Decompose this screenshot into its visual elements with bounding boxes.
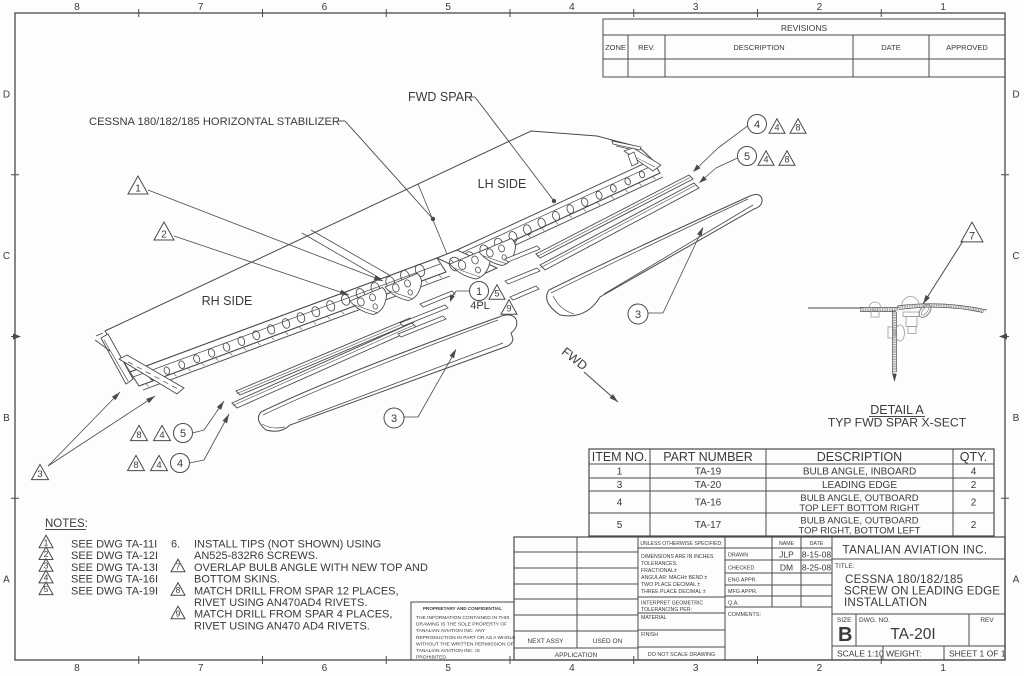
svg-text:4: 4	[569, 2, 575, 13]
svg-text:3: 3	[391, 413, 397, 425]
svg-text:ANGULAR: MACH± BEND ±: ANGULAR: MACH± BEND ±	[641, 575, 707, 581]
svg-text:4: 4	[569, 663, 575, 674]
svg-text:NEXT ASSY: NEXT ASSY	[527, 638, 564, 645]
svg-text:MFG APPR.: MFG APPR.	[728, 589, 757, 595]
svg-text:8: 8	[176, 585, 181, 595]
svg-text:PROPRIETARY AND CONFIDENTIAL: PROPRIETARY AND CONFIDENTIAL	[423, 606, 502, 611]
svg-text:5: 5	[617, 520, 623, 531]
svg-text:8-25-08: 8-25-08	[802, 563, 832, 573]
svg-text:TOP RIGHT, BOTTOM LEFT: TOP RIGHT, BOTTOM LEFT	[799, 526, 921, 537]
svg-text:1: 1	[617, 467, 623, 478]
svg-text:C: C	[1012, 251, 1019, 262]
svg-text:8: 8	[74, 2, 80, 13]
svg-text:8: 8	[133, 460, 138, 471]
svg-text:NOTES:: NOTES:	[45, 518, 88, 530]
svg-text:7: 7	[176, 561, 181, 571]
svg-text:FRACTIONAL±: FRACTIONAL±	[641, 568, 677, 574]
svg-text:ITEM NO.: ITEM NO.	[592, 450, 648, 464]
svg-text:MATERIAL: MATERIAL	[641, 615, 667, 621]
svg-text:3: 3	[617, 480, 623, 491]
svg-text:QTY.: QTY.	[960, 450, 988, 464]
svg-text:D: D	[1012, 89, 1019, 100]
svg-text:TITLE:: TITLE:	[835, 563, 855, 570]
svg-text:DO NOT SCALE DRAWING: DO NOT SCALE DRAWING	[648, 652, 715, 658]
svg-text:MATCH DRILL FROM SPAR 4 PLACES: MATCH DRILL FROM SPAR 4 PLACES,	[194, 609, 392, 621]
svg-text:1: 1	[940, 2, 946, 13]
svg-text:DRAWN: DRAWN	[728, 553, 748, 559]
svg-text:TA-19: TA-19	[695, 467, 722, 478]
svg-text:6: 6	[322, 663, 328, 674]
svg-text:1: 1	[476, 286, 482, 298]
svg-text:2: 2	[161, 230, 167, 241]
svg-text:A: A	[1013, 575, 1020, 586]
svg-text:COMMENTS:: COMMENTS:	[728, 612, 761, 618]
svg-text:9: 9	[176, 608, 181, 618]
svg-text:BULB ANGLE, INBOARD: BULB ANGLE, INBOARD	[803, 467, 916, 478]
svg-text:PART NUMBER: PART NUMBER	[663, 450, 753, 464]
svg-text:WITHOUT THE WRITTEN PERMISSION: WITHOUT THE WRITTEN PERMISSION OF	[416, 641, 514, 647]
svg-text:TA-17: TA-17	[695, 520, 722, 531]
svg-text:TOLERANCING PER:: TOLERANCING PER:	[641, 607, 692, 613]
svg-text:APPLICATION: APPLICATION	[555, 652, 598, 659]
svg-text:TWO PLACE DECIMAL ±: TWO PLACE DECIMAL ±	[641, 582, 700, 588]
svg-text:INSTALL TIPS (NOT SHOWN) USING: INSTALL TIPS (NOT SHOWN) USING	[194, 539, 381, 551]
svg-text:5: 5	[445, 663, 451, 674]
svg-text:REVISIONS: REVISIONS	[781, 23, 828, 33]
svg-text:1: 1	[135, 184, 141, 195]
svg-text:2: 2	[971, 520, 977, 531]
svg-text:TA-20: TA-20	[695, 480, 722, 491]
svg-text:5: 5	[494, 289, 499, 299]
svg-text:UNLESS OTHERWISE SPECIFIED:: UNLESS OTHERWISE SPECIFIED:	[640, 541, 722, 547]
svg-text:SEE DWG TA-16I: SEE DWG TA-16I	[71, 574, 158, 586]
svg-text:LEADING EDGE: LEADING EDGE	[822, 480, 897, 491]
svg-text:SEE DWG TA-13I: SEE DWG TA-13I	[71, 562, 158, 574]
svg-text:7: 7	[198, 2, 204, 13]
svg-text:A: A	[3, 575, 10, 586]
svg-text:4: 4	[754, 119, 760, 131]
svg-text:RH SIDE: RH SIDE	[202, 294, 253, 308]
svg-text:TANALIAN AVIATION INC.: TANALIAN AVIATION INC.	[843, 545, 988, 557]
svg-text:TA-20I: TA-20I	[890, 626, 935, 643]
svg-text:DATE: DATE	[810, 541, 824, 547]
svg-text:DESCRIPTION: DESCRIPTION	[733, 43, 784, 52]
svg-text:CHECKED: CHECKED	[728, 566, 754, 572]
svg-text:4PL: 4PL	[470, 300, 490, 312]
svg-text:4: 4	[159, 430, 164, 441]
svg-text:SIZE: SIZE	[837, 617, 852, 624]
svg-text:4: 4	[763, 155, 768, 165]
svg-text:5: 5	[44, 584, 49, 594]
svg-text:REV.: REV.	[638, 43, 655, 52]
svg-text:Q.A.: Q.A.	[728, 601, 739, 607]
svg-text:2: 2	[971, 480, 977, 491]
svg-text:TANALIAN AVIATION INC. ANY: TANALIAN AVIATION INC. ANY	[416, 628, 486, 634]
svg-text:5: 5	[180, 428, 186, 440]
svg-text:DIMENSIONS ARE IN INCHES: DIMENSIONS ARE IN INCHES	[641, 554, 714, 560]
svg-text:SEE DWG TA-19I: SEE DWG TA-19I	[71, 585, 158, 597]
svg-text:ZONE: ZONE	[605, 43, 626, 52]
svg-text:FINISH: FINISH	[641, 632, 658, 638]
svg-text:2: 2	[971, 498, 977, 509]
svg-text:2: 2	[817, 2, 823, 13]
svg-text:4: 4	[177, 458, 183, 470]
svg-text:INTERPRET GEOMETRIC: INTERPRET GEOMETRIC	[641, 601, 703, 607]
svg-text:INSTALLATION: INSTALLATION	[844, 596, 927, 609]
svg-text:4: 4	[156, 460, 161, 471]
svg-text:TYP FWD SPAR X-SECT: TYP FWD SPAR X-SECT	[828, 416, 967, 430]
svg-text:TA-16: TA-16	[695, 498, 722, 509]
svg-text:3: 3	[693, 663, 699, 674]
svg-text:THREE PLACE DECIMAL ±: THREE PLACE DECIMAL ±	[641, 589, 706, 595]
svg-text:REPRODUCTION IN PART OR AS A W: REPRODUCTION IN PART OR AS A WHOLE	[416, 635, 516, 641]
svg-text:B: B	[838, 624, 852, 646]
svg-text:APPROVED: APPROVED	[946, 43, 988, 52]
svg-text:9: 9	[506, 304, 511, 314]
svg-text:RIVET USING AN470AD4 RIVETS.: RIVET USING AN470AD4 RIVETS.	[194, 597, 367, 609]
svg-text:WEIGHT:: WEIGHT:	[886, 649, 921, 659]
svg-text:RIVET USING AN470 AD4 RIVETS.: RIVET USING AN470 AD4 RIVETS.	[194, 620, 370, 632]
svg-text:5: 5	[744, 151, 750, 163]
svg-text:2: 2	[817, 663, 823, 674]
svg-text:LH SIDE: LH SIDE	[478, 177, 527, 191]
svg-text:8: 8	[74, 663, 80, 674]
svg-text:3: 3	[693, 2, 699, 13]
svg-text:BOTTOM SKINS.: BOTTOM SKINS.	[194, 574, 280, 586]
svg-text:7: 7	[198, 663, 204, 674]
svg-text:3: 3	[635, 309, 641, 321]
svg-text:SHEET 1 OF 1: SHEET 1 OF 1	[949, 649, 1006, 659]
svg-text:4: 4	[971, 467, 977, 478]
svg-text:6.: 6.	[171, 539, 180, 551]
svg-text:DATE: DATE	[881, 43, 900, 52]
svg-text:FWD SPAR: FWD SPAR	[408, 90, 473, 104]
svg-text:TOLERANCES:: TOLERANCES:	[641, 561, 678, 567]
svg-text:TOP LEFT BOTTOM RIGHT: TOP LEFT BOTTOM RIGHT	[799, 503, 919, 514]
svg-text:USED ON: USED ON	[593, 638, 623, 645]
svg-text:4: 4	[44, 572, 49, 582]
svg-text:8: 8	[136, 430, 141, 441]
svg-text:8: 8	[795, 123, 800, 133]
svg-text:1: 1	[44, 537, 49, 547]
svg-text:MATCH DRILL FROM SPAR 12 PLACE: MATCH DRILL FROM SPAR 12 PLACES,	[194, 585, 399, 597]
svg-text:B: B	[1013, 413, 1020, 424]
svg-text:SCALE 1:10: SCALE 1:10	[837, 649, 884, 659]
svg-text:B: B	[3, 413, 10, 424]
svg-text:THE INFORMATION CONTAINED IN T: THE INFORMATION CONTAINED IN THIS	[416, 615, 510, 621]
svg-text:1: 1	[940, 663, 946, 674]
svg-text:PROHIBITED.: PROHIBITED.	[416, 655, 447, 661]
svg-text:SEE DWG TA-11I: SEE DWG TA-11I	[71, 539, 157, 551]
svg-text:DRAWING IS THE SOLE PROPERTY O: DRAWING IS THE SOLE PROPERTY OF	[416, 622, 507, 628]
svg-text:CESSNA 180/182/185 HORIZONTAL: CESSNA 180/182/185 HORIZONTAL STABILIZER	[89, 116, 340, 128]
svg-text:TANALIAN AVIATION INC. IS: TANALIAN AVIATION INC. IS	[416, 648, 481, 654]
svg-text:DESCRIPTION: DESCRIPTION	[817, 450, 902, 464]
svg-text:AN525-832R6 SCREWS.: AN525-832R6 SCREWS.	[194, 550, 318, 562]
svg-text:NAME: NAME	[779, 541, 795, 547]
svg-text:2: 2	[44, 549, 49, 559]
svg-text:8: 8	[784, 155, 789, 165]
svg-text:C: C	[3, 251, 10, 262]
svg-text:ENG APPR.: ENG APPR.	[728, 578, 757, 584]
svg-text:5: 5	[445, 2, 451, 13]
svg-text:OVERLAP BULB ANGLE WITH NEW TO: OVERLAP BULB ANGLE WITH NEW TOP AND	[194, 562, 428, 574]
svg-text:DWG. NO.: DWG. NO.	[859, 617, 890, 624]
svg-text:4: 4	[617, 498, 623, 509]
svg-text:8-15-08: 8-15-08	[802, 550, 832, 560]
svg-text:D: D	[3, 89, 10, 100]
svg-text:SEE DWG TA-12I: SEE DWG TA-12I	[71, 550, 158, 562]
svg-text:3: 3	[44, 561, 49, 571]
svg-text:REV: REV	[980, 617, 994, 624]
svg-text:JLP: JLP	[779, 550, 794, 560]
svg-text:4: 4	[774, 123, 779, 133]
svg-text:3: 3	[37, 469, 42, 480]
svg-text:DM: DM	[780, 563, 793, 573]
svg-text:7: 7	[969, 230, 975, 242]
svg-text:6: 6	[322, 2, 328, 13]
